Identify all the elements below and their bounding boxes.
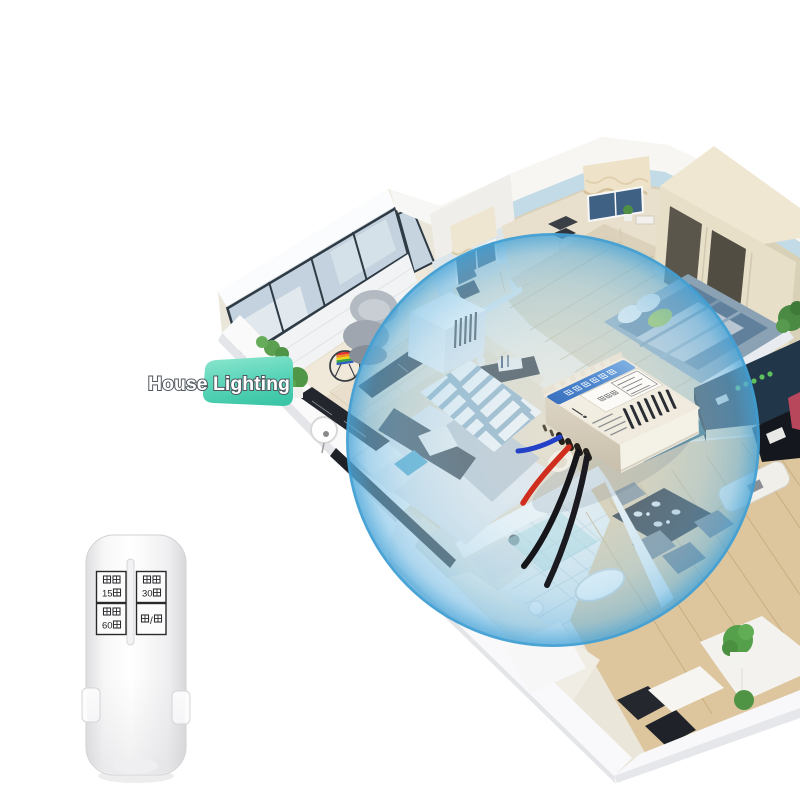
- svg-text:House Lighting: House Lighting: [148, 373, 290, 395]
- svg-text:60: 60: [102, 621, 113, 632]
- svg-text:30: 30: [142, 589, 153, 600]
- svg-text:/: /: [150, 616, 153, 627]
- svg-text:15: 15: [102, 589, 113, 600]
